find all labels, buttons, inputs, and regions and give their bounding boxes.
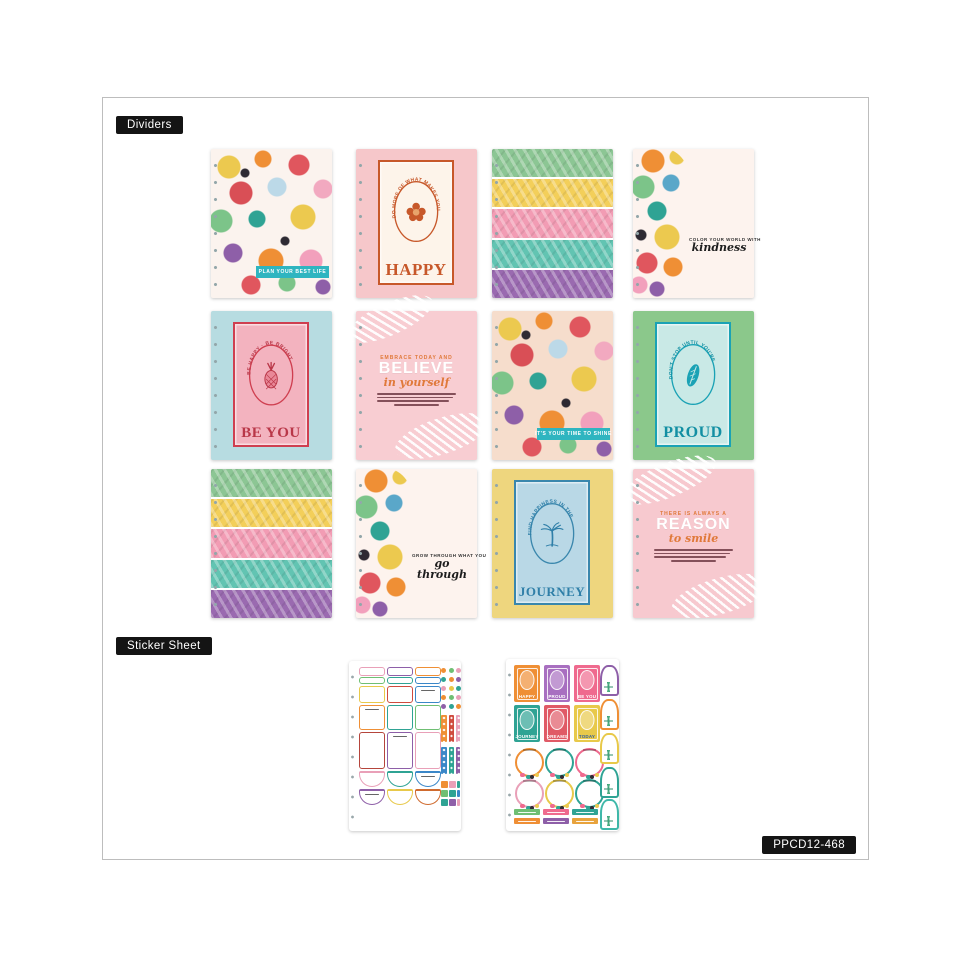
divider-tab — [751, 249, 763, 295]
divider-tab — [329, 315, 341, 351]
stamp-sticker-label: HAPPY — [514, 694, 540, 699]
label-strip-sticker — [572, 818, 598, 824]
divider-tab — [329, 153, 341, 189]
sticker-medium-box — [359, 705, 385, 730]
tropical-leaf-icon — [684, 363, 701, 388]
square-sticker — [449, 799, 456, 806]
stamp-sticker-proud: PROUD — [544, 665, 570, 702]
quote-script-word: in yourself — [362, 377, 471, 388]
divider-believe: EMBRACE TODAY AND BELIEVE in yourself — [356, 311, 477, 460]
sticker-half-circle — [387, 789, 413, 805]
label-strip-sticker — [543, 809, 569, 815]
stamp-arc-text: BE HAPPY · BE BRIGHT — [246, 340, 293, 375]
disc-punch-holes — [358, 477, 363, 610]
divider-go-through: GROW THROUGH WHAT YOU go through — [356, 469, 477, 618]
quote-block: COLOR YOUR WORLD WITH kindness — [689, 237, 749, 253]
fine-print-lines — [654, 549, 732, 562]
arch-sticker — [600, 733, 619, 764]
square-sticker — [441, 790, 448, 797]
sticker-sheet-boxes — [349, 661, 461, 831]
sticker-header-strip — [359, 667, 385, 676]
disc-punch-holes — [635, 319, 640, 452]
sticker-sheet-section-label: Sticker Sheet — [116, 637, 212, 655]
disc-punch-holes — [350, 667, 355, 825]
sticker-thin-strip — [415, 677, 441, 684]
stamp-word: PROUD — [663, 424, 722, 442]
divider-tab — [610, 369, 622, 415]
stamp-word: HAPPY — [385, 260, 446, 280]
arch-sticker — [600, 767, 619, 798]
floral-edge-art — [633, 149, 691, 298]
divider-tropical-stripes — [492, 149, 613, 298]
palm-frond-art — [667, 565, 773, 627]
wreath-sticker — [545, 779, 574, 808]
stamp-frame: DON'T STOP UNTIL YOU'RE PROUD — [655, 322, 731, 447]
banner-text: IT'S YOUR TIME TO SHINE — [535, 431, 612, 437]
dot-stickers-row — [441, 686, 461, 691]
vertical-strip-sticker — [441, 715, 447, 742]
quote-script-word: kindness — [689, 242, 749, 253]
palm-frond-art — [390, 404, 494, 469]
sticker-thin-strip — [387, 677, 413, 684]
stamp-sticker-today: TODAY — [574, 705, 600, 742]
stamp-sticker-journey: JOURNEY — [514, 705, 540, 742]
divider-tropical-collage-2: IT'S YOUR TIME TO SHINE — [492, 311, 613, 460]
label-strip-sticker — [543, 818, 569, 824]
stamp-frame: DO MORE OF WHAT MAKES YOU HAPPY — [378, 160, 454, 285]
sticker-half-circle — [359, 789, 385, 805]
square-sticker — [457, 781, 460, 788]
palm-tree-icon — [541, 523, 563, 546]
dot-stickers-row — [441, 677, 461, 682]
divider-tab — [474, 197, 486, 233]
disc-punch-holes — [358, 319, 363, 452]
stamp-frame: BE HAPPY · BE BRIGHT BE YOU — [233, 322, 309, 447]
stamp-oval-graphic: BE HAPPY · BE BRIGHT — [238, 326, 304, 429]
disc-punch-holes — [494, 157, 499, 290]
divider-tab — [474, 495, 486, 541]
fine-print-lines — [377, 393, 455, 406]
stripe-pattern — [211, 469, 332, 618]
sticker-medium-box — [415, 705, 441, 730]
stamp-sticker-label: TODAY — [574, 734, 600, 739]
disc-punch-holes — [213, 319, 218, 452]
svg-text:BE HAPPY · BE BRIGHT: BE HAPPY · BE BRIGHT — [246, 340, 293, 375]
sticker-small-box — [415, 686, 441, 703]
sticker-header-strip — [415, 667, 441, 676]
vertical-strip-sticker — [456, 715, 460, 742]
stamp-sticker-label: DREAMS — [544, 734, 570, 739]
wreath-sticker — [515, 748, 544, 777]
quote-block: GROW THROUGH WHAT YOU go through — [412, 553, 472, 580]
stripe-pattern — [492, 149, 613, 298]
quote-block: EMBRACE TODAY AND BELIEVE in yourself — [362, 355, 471, 408]
stamp-sticker-happy: HAPPY — [514, 665, 540, 702]
disc-punch-holes — [635, 477, 640, 610]
quote-script-word: go through — [412, 558, 472, 580]
dividers-section-label: Dividers — [116, 116, 183, 134]
vertical-strip-sticker — [449, 747, 455, 774]
label-strip-sticker — [514, 809, 540, 815]
sticker-medium-box — [387, 705, 413, 730]
sticker-thin-strip — [359, 677, 385, 684]
label-strip-sticker — [514, 818, 540, 824]
square-sticker — [457, 799, 460, 806]
square-sticker — [441, 781, 448, 788]
square-sticker — [449, 790, 456, 797]
stamp-word: BE YOU — [241, 425, 301, 442]
quote-block: THERE IS ALWAYS A REASON to smile — [639, 511, 748, 564]
sticker-half-circle — [415, 789, 441, 805]
divider-tab — [610, 539, 622, 575]
vertical-strip-sticker — [456, 747, 460, 774]
disc-punch-holes — [213, 477, 218, 610]
sticker-tall-box — [359, 732, 385, 769]
divider-happy: DO MORE OF WHAT MAKES YOU HAPPY — [356, 149, 477, 298]
wreath-sticker — [515, 779, 544, 808]
divider-tropical-stripes-2 — [211, 469, 332, 618]
sticker-half-circle — [359, 771, 385, 787]
stamp-sticker-label: JOURNEY — [514, 734, 540, 739]
square-sticker — [457, 790, 460, 797]
arch-sticker — [600, 665, 619, 696]
floral-edge-art — [356, 469, 414, 618]
sticker-half-circle — [415, 771, 441, 787]
quote-script-word: to smile — [639, 533, 748, 544]
disc-punch-holes — [507, 665, 512, 825]
divider-tropical-collage: PLAN YOUR BEST LIFE — [211, 149, 332, 298]
divider-journey: FIND HAPPINESS IN THE JOURNEY — [492, 469, 613, 618]
stamp-oval-graphic: DO MORE OF WHAT MAKES YOU — [383, 164, 449, 264]
hibiscus-flower-icon — [406, 203, 425, 221]
vertical-strip-sticker — [441, 747, 447, 774]
stamp-sticker-label: PROUD — [544, 694, 570, 699]
divider-kindness: COLOR YOUR WORLD WITH kindness — [633, 149, 754, 298]
wreath-sticker — [545, 748, 574, 777]
square-sticker — [441, 799, 448, 806]
sticker-half-circle — [387, 771, 413, 787]
sticker-header-strip — [387, 667, 413, 676]
stamp-sticker-dreams: DREAMS — [544, 705, 570, 742]
stamp-sticker-be-you: BE YOU — [574, 665, 600, 702]
stamp-oval-graphic: DON'T STOP UNTIL YOU'RE — [660, 326, 726, 428]
sticker-small-box — [359, 686, 385, 703]
stamp-oval-graphic: FIND HAPPINESS IN THE — [519, 484, 585, 588]
disc-punch-holes — [494, 319, 499, 452]
product-code-badge: PPCD12-468 — [762, 836, 856, 854]
arch-sticker — [600, 799, 619, 830]
sticker-tall-box — [415, 732, 441, 769]
disc-punch-holes — [635, 157, 640, 290]
sticker-small-box — [387, 686, 413, 703]
dot-stickers-row — [441, 695, 461, 700]
divider-banner: IT'S YOUR TIME TO SHINE — [537, 428, 610, 440]
arch-sticker — [600, 699, 619, 730]
disc-punch-holes — [358, 157, 363, 290]
divider-proud: DON'T STOP UNTIL YOU'RE PROUD — [633, 311, 754, 460]
vertical-strip-sticker — [449, 715, 455, 742]
divider-tab — [474, 345, 486, 381]
disc-punch-holes — [494, 477, 499, 610]
label-strip-sticker — [572, 809, 598, 815]
quote-word: REASON — [639, 517, 748, 533]
sticker-tall-box — [387, 732, 413, 769]
disc-punch-holes — [213, 157, 218, 290]
sticker-sheet-stamps: HAPPY PROUD BE YOU JOURNEY DREAMS TODAY — [506, 659, 619, 831]
stamp-sticker-label: BE YOU — [574, 694, 600, 699]
product-image-panel: Dividers Sticker Sheet PPCD12-468 PLAN Y… — [102, 97, 869, 860]
dot-stickers-row — [441, 668, 461, 673]
quote-word: BELIEVE — [362, 361, 471, 377]
divider-be-you: BE HAPPY · BE BRIGHT BE YOU — [211, 311, 332, 460]
pineapple-icon — [265, 363, 277, 389]
stamp-frame: FIND HAPPINESS IN THE JOURNEY — [514, 480, 590, 605]
divider-banner: PLAN YOUR BEST LIFE — [256, 266, 329, 278]
divider-reason-to-smile: THERE IS ALWAYS A REASON to smile — [633, 469, 754, 618]
stamp-word: JOURNEY — [519, 584, 585, 600]
dot-stickers-row — [441, 704, 461, 709]
divider-tab — [751, 419, 763, 455]
banner-text: PLAN YOUR BEST LIFE — [259, 269, 327, 275]
square-sticker — [449, 781, 456, 788]
